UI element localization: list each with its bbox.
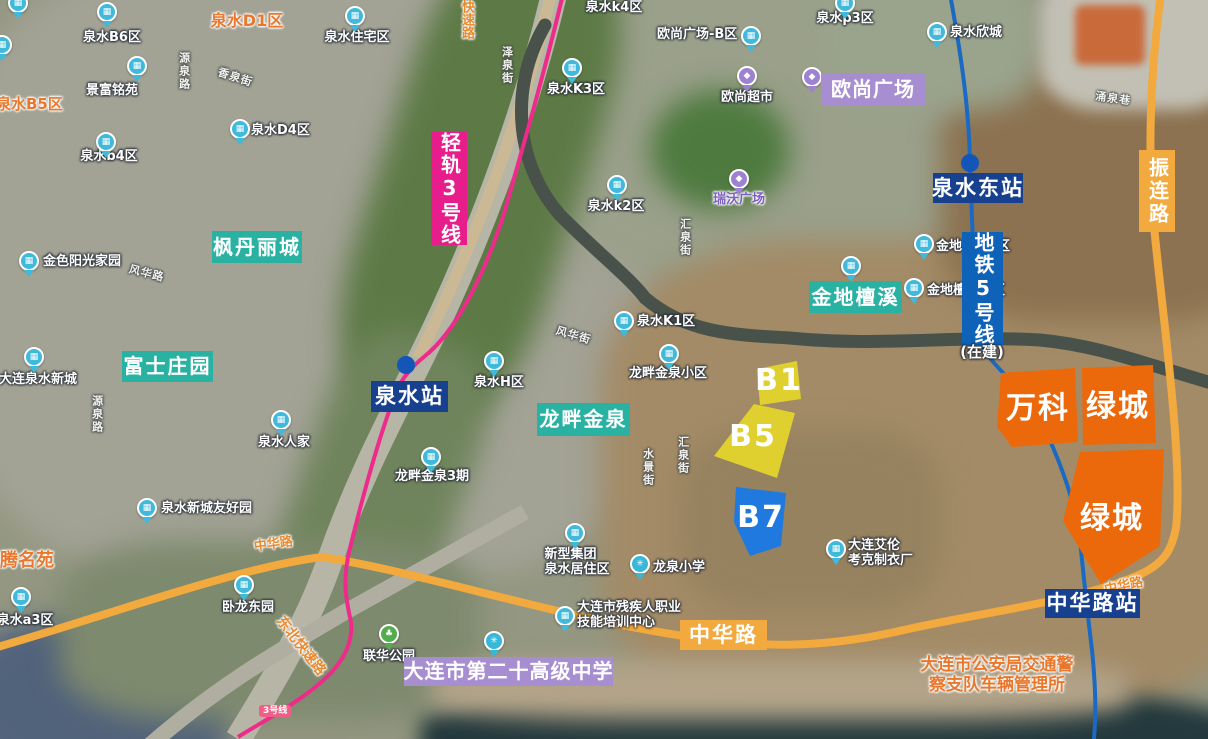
pin-xinxingjituan-building-icon[interactable]: ▦ xyxy=(565,523,585,543)
pin-quanshui-k3-building-icon[interactable]: ▦ xyxy=(562,58,582,78)
pin-wolongdongyuan-building-icon[interactable]: ▦ xyxy=(234,575,254,595)
rail3-line-label: 轻轨3号线 xyxy=(431,132,467,245)
pin-ruiwo-plaza-shopping-icon[interactable]: ◆ xyxy=(729,169,749,189)
area-tengmingyuan: 腾名苑 xyxy=(0,551,54,572)
poi-quanshui-b6[interactable]: 泉水B6区 xyxy=(83,31,141,46)
poi-ailun-factory[interactable]: 大连艾伦考克制衣厂 xyxy=(848,539,913,569)
street-zequanjie: 泽泉街 xyxy=(500,46,513,85)
poi-quanshui-k1[interactable]: 泉水K1区 xyxy=(637,315,695,330)
area-quanshui-b5: 泉水B5区 xyxy=(0,96,63,113)
parcel-b1-label: B1 xyxy=(755,364,803,399)
area-longpanjinquan[interactable]: 龙畔金泉 xyxy=(537,403,630,436)
parcel-b7-label: B7 xyxy=(737,501,785,536)
pin-quanshui-renjia-building-icon[interactable]: ▦ xyxy=(271,410,291,430)
station-quanshui[interactable]: 泉水站 xyxy=(371,381,448,412)
pin-jindi-xiaoqu-building-icon[interactable]: ▦ xyxy=(904,278,924,298)
pin-longquan-school-school-icon[interactable]: ✳ xyxy=(630,554,650,574)
road-dongbeikuaisulu: 东北快速路 xyxy=(273,613,329,678)
pin-canjiren-building-icon[interactable]: ▦ xyxy=(555,606,575,626)
pin-quanshui-k2-building-icon[interactable]: ▦ xyxy=(607,175,627,195)
pin-jingfumingyuan-building-icon[interactable]: ▦ xyxy=(127,56,147,76)
street-xiangquanjie: 香泉街 xyxy=(216,66,254,89)
pin-youhaoyuan-building-icon[interactable]: ▦ xyxy=(137,498,157,518)
road-kuaisulu-top: 快速路 xyxy=(458,0,473,39)
label-overlay: B1B5B7万科绿城绿城泉水站泉水东站中华路站轻轨3号线地铁5号线(在建)振连路… xyxy=(0,0,1208,739)
road-zhonghua-west: 中华路 xyxy=(253,535,294,555)
poi-xinchengyouhaoyuan[interactable]: 泉水新城友好园 xyxy=(161,502,252,517)
pin-quanshui-b4-building-icon[interactable]: ▦ xyxy=(96,132,116,152)
pin-ailun-factory-building-icon[interactable]: ▦ xyxy=(826,539,846,559)
pin-oushang-b-building-icon[interactable]: ▦ xyxy=(741,26,761,46)
area-no20-high-school[interactable]: 大连市第二十高级中学 xyxy=(404,657,613,686)
street-yongquanxiang: 涌泉巷 xyxy=(1094,90,1131,108)
area-oushang-plaza[interactable]: 欧尚广场 xyxy=(821,73,925,106)
street-yuanquanlu-n: 源泉路 xyxy=(177,52,190,91)
station-quanshui-east[interactable]: 泉水东站 xyxy=(933,173,1023,203)
badge-line3: 3号线 xyxy=(259,705,291,717)
pin-oushang-market-shopping-icon[interactable]: ◆ xyxy=(737,66,757,86)
pin-jinseyangguang-building-icon[interactable]: ▦ xyxy=(19,251,39,271)
pin-quanshui-b6-building-icon[interactable]: ▦ xyxy=(97,2,117,22)
parcel-b5-label: B5 xyxy=(729,420,777,455)
pin-longpan-3qi-building-icon[interactable]: ▦ xyxy=(421,447,441,467)
road-zhonghua-box: 中华路 xyxy=(680,620,767,650)
metro5-under-construction: (在建) xyxy=(960,344,1004,361)
pin-jindi-3qu-building-icon[interactable]: ▦ xyxy=(914,234,934,254)
poi-longquan-school[interactable]: 龙泉小学 xyxy=(653,561,705,576)
poi-quanshui-h[interactable]: 泉水H区 xyxy=(474,376,524,391)
map-canvas[interactable]: B1B5B7万科绿城绿城泉水站泉水东站中华路站轻轨3号线地铁5号线(在建)振连路… xyxy=(0,0,1208,739)
road-zhenlian: 振连路 xyxy=(1139,150,1175,232)
poi-canjiren-center[interactable]: 大连市残疾人职业技能培训中心 xyxy=(577,601,681,631)
area-traffic-police: 大连市公安局交通警察支队车辆管理所 xyxy=(921,656,1074,695)
parcel-lvcheng-north-label: 绿城 xyxy=(1086,390,1150,425)
pin-edge-1-building-icon[interactable]: ▦ xyxy=(8,0,28,13)
poi-oushang-b[interactable]: 欧尚广场-B区 xyxy=(657,28,737,43)
pin-quanshui-zhuzhaiqu-building-icon[interactable]: ▦ xyxy=(345,6,365,26)
area-jinditanxi[interactable]: 金地檀溪 xyxy=(809,281,902,313)
pin-quanshui-k1-building-icon[interactable]: ▦ xyxy=(614,311,634,331)
area-fengdanlicheng[interactable]: 枫丹丽城 xyxy=(212,231,302,263)
pin-quanshui-a3-building-icon[interactable]: ▦ xyxy=(11,587,31,607)
poi-quanshui-k4[interactable]: 泉水k4区 xyxy=(586,1,643,16)
pin-edge-2-building-icon[interactable]: ▦ xyxy=(0,35,12,55)
metro5-line-label: 地铁5号线 xyxy=(962,232,1003,345)
pin-jinditanxi-building-icon[interactable]: ▦ xyxy=(841,256,861,276)
parcel-wanke-label: 万科 xyxy=(1006,392,1070,427)
pin-quanshui-h-building-icon[interactable]: ▦ xyxy=(484,351,504,371)
poi-quanshui-xincheng[interactable]: 泉水欣城 xyxy=(950,26,1002,41)
pin-quanshui-d4-building-icon[interactable]: ▦ xyxy=(230,119,250,139)
poi-jinseyangguang[interactable]: 金色阳光家园 xyxy=(43,255,121,270)
poi-jingfumingyuan[interactable]: 景富铭苑 xyxy=(86,84,138,99)
parcel-lvcheng-south-label: 绿城 xyxy=(1080,502,1144,537)
poi-quanshui-d4[interactable]: 泉水D4区 xyxy=(251,124,310,139)
pin-quanshui-xinchengg-building-icon[interactable]: ▦ xyxy=(927,22,947,42)
street-fenghuajie: 风华街 xyxy=(554,325,592,347)
pin-longpan-xiaoqu-building-icon[interactable]: ▦ xyxy=(659,344,679,364)
station-zhonghua-road[interactable]: 中华路站 xyxy=(1045,589,1140,618)
area-fushizhuangyuan[interactable]: 富士庄园 xyxy=(122,351,213,382)
pin-school-2-school-icon[interactable]: ✳ xyxy=(484,631,504,651)
poi-quanshui-a3[interactable]: 泉水a3区 xyxy=(0,614,53,629)
street-yuanquanlu-s: 源泉路 xyxy=(90,395,103,434)
area-quanshui-d1: 泉水D1区 xyxy=(211,12,283,30)
street-fenghualu: 风华路 xyxy=(127,264,165,285)
street-shuijingjie: 水景街 xyxy=(641,448,654,487)
pin-oushang-plaza-shopping-icon[interactable]: ◆ xyxy=(802,67,822,87)
pin-quanshuixincheng-building-icon[interactable]: ▦ xyxy=(24,347,44,367)
street-huiquanjie-s: 汇泉街 xyxy=(676,436,689,475)
street-huiquanjie-n: 汇泉街 xyxy=(678,218,691,257)
pin-lianhua-park-park-icon[interactable]: ♣ xyxy=(379,624,399,644)
